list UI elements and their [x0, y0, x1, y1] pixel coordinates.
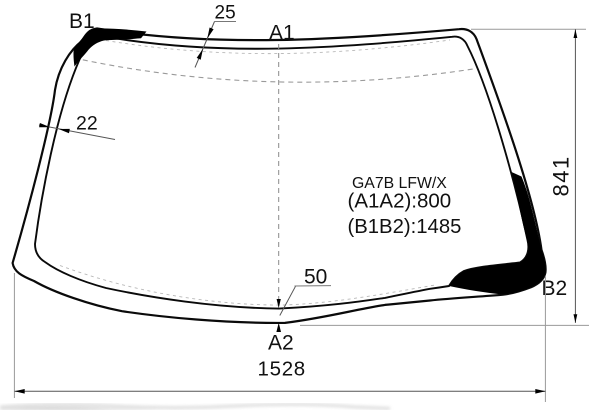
svg-text:50: 50: [304, 266, 327, 289]
svg-text:A1: A1: [269, 22, 295, 45]
svg-text:(A1A2):800: (A1A2):800: [348, 190, 452, 213]
svg-text:841: 841: [549, 155, 574, 196]
svg-text:22: 22: [76, 113, 98, 135]
svg-text:B1: B1: [69, 10, 95, 33]
svg-text:1528: 1528: [258, 358, 306, 381]
svg-text:(B1B2):1485: (B1B2):1485: [348, 216, 462, 238]
svg-text:A2: A2: [268, 332, 294, 355]
svg-text:25: 25: [215, 3, 236, 24]
